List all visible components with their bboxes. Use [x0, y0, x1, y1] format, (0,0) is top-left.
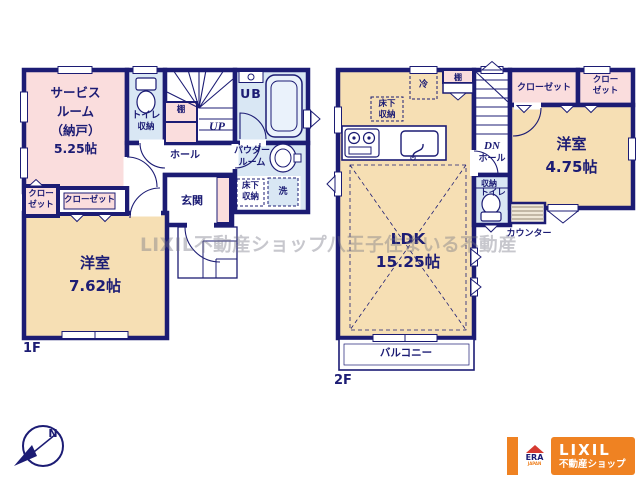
- label-closet-wide-1f: クローゼット: [64, 195, 115, 207]
- label-toilet-2f: トイレ: [479, 188, 507, 200]
- compass-north-label: N: [46, 426, 60, 441]
- label-service-room: サービス ルーム （納戸） 5.25帖: [24, 84, 127, 159]
- label-powder-room: パウダー ルーム: [233, 146, 271, 169]
- label-stairs-up: UP: [202, 118, 232, 135]
- kitchen-counter: [342, 126, 446, 160]
- shelf-2f-counter: [443, 83, 473, 93]
- label-bedroom-1f: 洋室 7.62帖: [45, 252, 145, 299]
- label-hall-1f: ホール: [163, 149, 207, 163]
- watermark-text: LIXIL不動産ショップ八王子住まいる不動産: [140, 231, 517, 257]
- label-entrance: 玄関: [172, 193, 212, 208]
- lixil-brand-subtext: 不動産ショップ: [559, 459, 635, 470]
- era-logo: ERA JAPAN: [521, 437, 548, 475]
- label-toilet-1f: トイレ: [129, 109, 163, 122]
- era-logo-caption: JAPAN: [528, 462, 542, 467]
- lixil-logo-box: LIXIL 不動産ショップ: [551, 437, 635, 475]
- toilet-icon-1f: [136, 78, 156, 113]
- label-closet-small-1f: クロー ゼット: [25, 189, 57, 211]
- counter-2f-box: [510, 203, 545, 223]
- company-logo: ERA JAPAN LIXIL 不動産ショップ: [507, 437, 635, 475]
- label-hall-2f: ホール: [474, 153, 510, 166]
- label-shelf-2f: 棚: [443, 72, 473, 83]
- label-floor-1f: 1F: [23, 340, 49, 358]
- label-toilet-storage-1f: 収納: [131, 122, 161, 134]
- label-balcony: バルコニー: [365, 346, 447, 361]
- stove-icon: [345, 129, 379, 157]
- label-shelf-1f: 棚: [165, 105, 197, 117]
- label-bedroom-2f: 洋室 4.75帖: [520, 133, 623, 178]
- label-fridge: 冷: [410, 79, 437, 92]
- bathtub-icon: [266, 75, 302, 137]
- label-laundry: 洗: [272, 186, 294, 199]
- label-underfloor-1f: 床下 収納: [238, 181, 263, 203]
- label-closet-corner-2f: クロー ゼット: [582, 75, 629, 97]
- logo-orange-bar: [507, 437, 518, 475]
- ub-vanity-icon: [239, 72, 263, 83]
- entrance-step: [217, 178, 230, 223]
- lixil-brand-text: LIXIL: [559, 442, 635, 459]
- label-closet-wide-2f: クローゼット: [512, 82, 576, 95]
- label-floor-2f: 2F: [334, 372, 360, 390]
- shelf-1f-lower: [165, 122, 197, 143]
- label-underfloor-2f: 床下 収納: [371, 99, 403, 121]
- era-roof-icon: [526, 445, 544, 453]
- room-ldk-2f: [338, 70, 474, 338]
- floorplan-page: サービス ルーム （納戸） 5.25帖 トイレ 収納 棚 UP UB ホール パ…: [0, 0, 640, 480]
- label-unit-bath: UB: [236, 85, 266, 103]
